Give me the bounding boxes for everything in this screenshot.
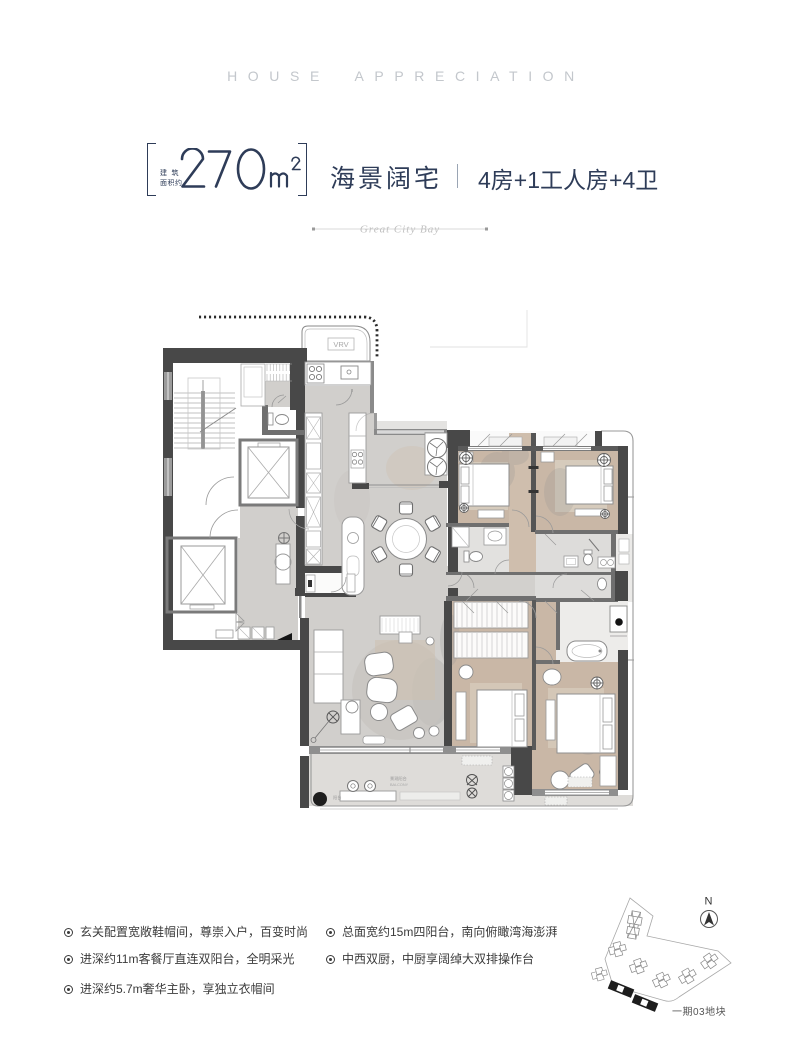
svg-text:N: N [705,896,713,908]
svg-text:景观阳台: 景观阳台 [390,775,407,782]
svg-text:一期03地块: 一期03地块 [672,1005,726,1018]
svg-text:VRV: VRV [333,340,348,349]
svg-text:BALCONY: BALCONY [390,783,409,787]
svg-text:阳台: 阳台 [333,794,341,801]
